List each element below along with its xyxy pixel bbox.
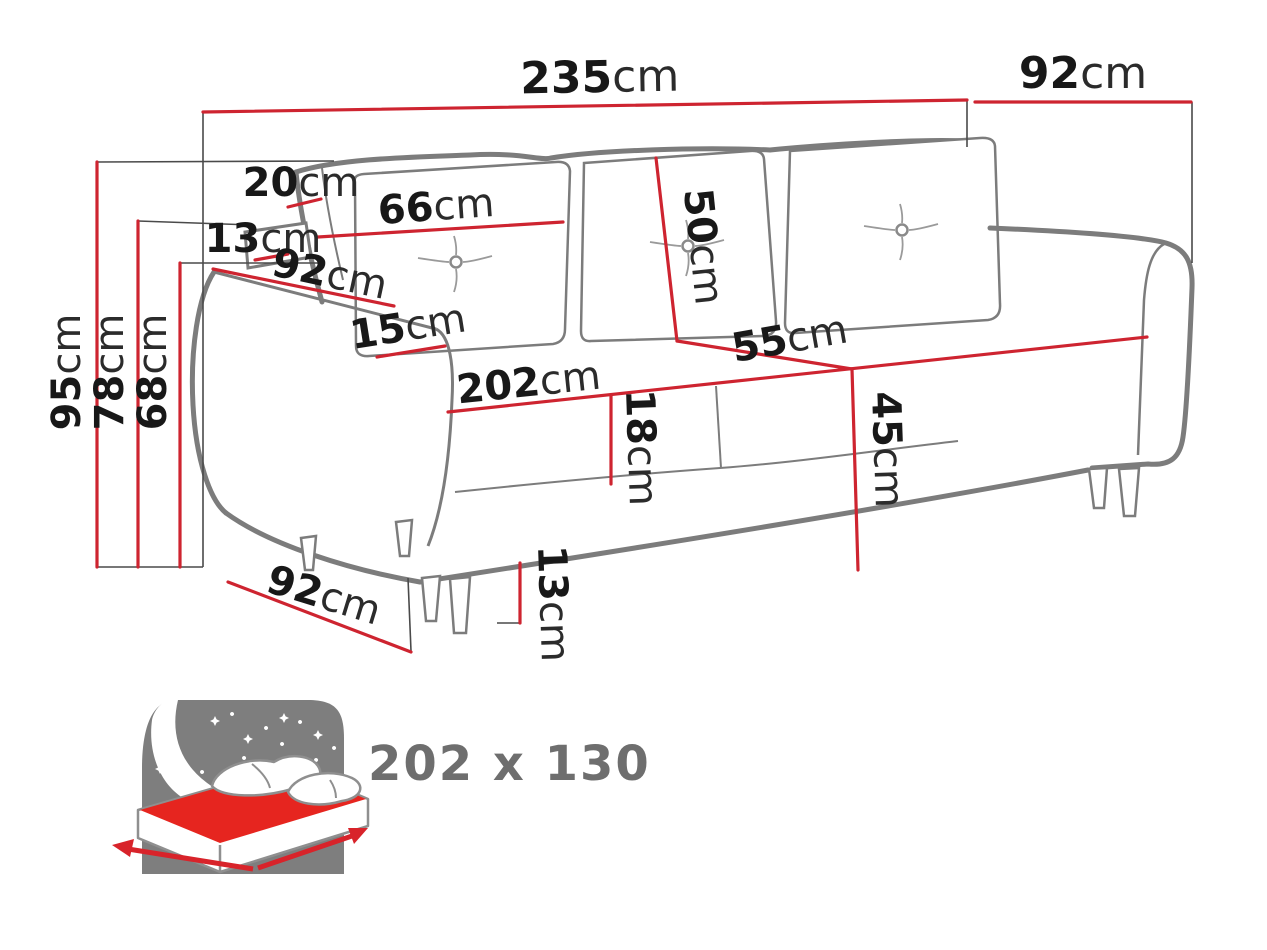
arrow-width-head	[348, 828, 368, 844]
sofa-dimension-diagram: 235cm 92cm 20cm 13cm 66cm 50cm 92cm 15cm…	[0, 0, 1267, 950]
label-seat-height: 45cm	[862, 390, 912, 508]
label-seat-width: 202cm	[454, 353, 602, 414]
label-overall-depth: 92cm	[1019, 48, 1147, 99]
back-cushion-right	[785, 138, 1000, 333]
label-seat-cushion-thickness: 18cm	[616, 388, 666, 506]
sleep-function-icon	[112, 700, 368, 874]
label-back-cushion-width: 66cm	[376, 180, 496, 234]
diagram-canvas: 235cm 92cm 20cm 13cm 66cm 50cm 92cm 15cm…	[0, 0, 1267, 950]
label-armrest-height: 68cm	[130, 314, 176, 431]
arrow-length-head	[112, 839, 134, 857]
sleeping-area-size: 202 x 130	[368, 736, 651, 792]
label-back-cushion-thickness: 20cm	[243, 160, 360, 206]
dimline-seat-height	[852, 369, 858, 570]
left-arm-front-edge	[428, 329, 452, 546]
label-base-depth: 92cm	[261, 557, 386, 635]
tuft-button-right	[897, 225, 908, 236]
right-arm-outer	[990, 228, 1192, 468]
tuft-button-left	[451, 257, 462, 268]
sofa-legs	[301, 468, 1139, 633]
left-arm-outer	[192, 272, 226, 513]
label-total-height: 95cm	[44, 314, 90, 431]
label-backrest-height: 78cm	[87, 314, 133, 431]
label-overall-width: 235cm	[520, 51, 680, 105]
right-arm-inner	[1138, 244, 1164, 455]
seat-cushion-divider	[716, 386, 721, 468]
label-leg-height: 13cm	[528, 544, 578, 662]
ext-base-depth-front	[408, 578, 411, 651]
